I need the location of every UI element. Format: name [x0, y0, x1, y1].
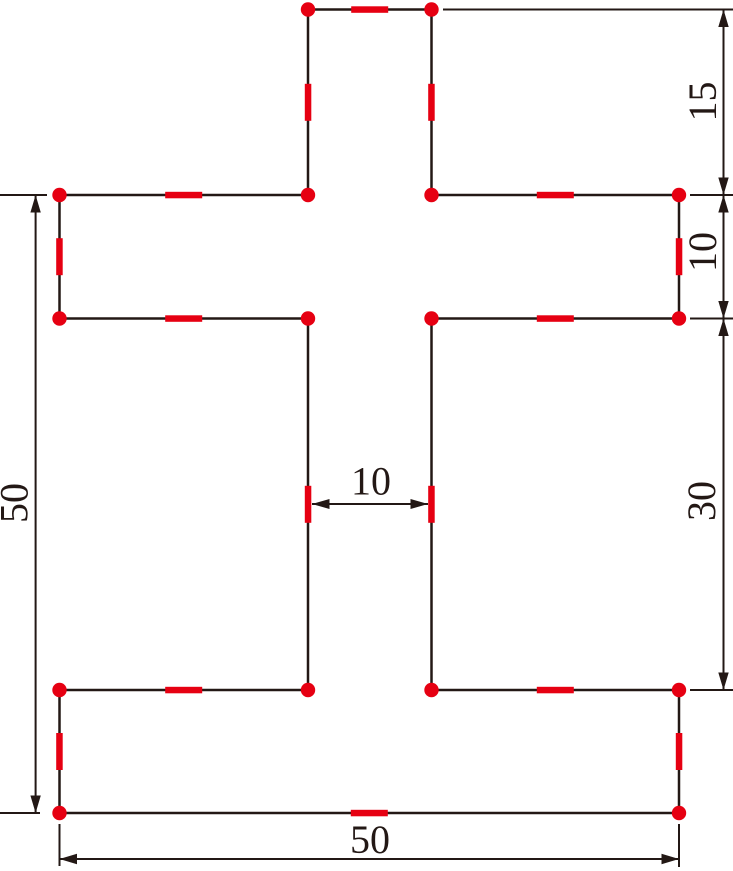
- svg-text:15: 15: [680, 82, 725, 122]
- svg-text:50: 50: [0, 483, 37, 523]
- svg-text:10: 10: [680, 232, 725, 272]
- svg-text:10: 10: [351, 459, 391, 504]
- svg-text:50: 50: [350, 817, 390, 862]
- svg-text:30: 30: [679, 481, 724, 521]
